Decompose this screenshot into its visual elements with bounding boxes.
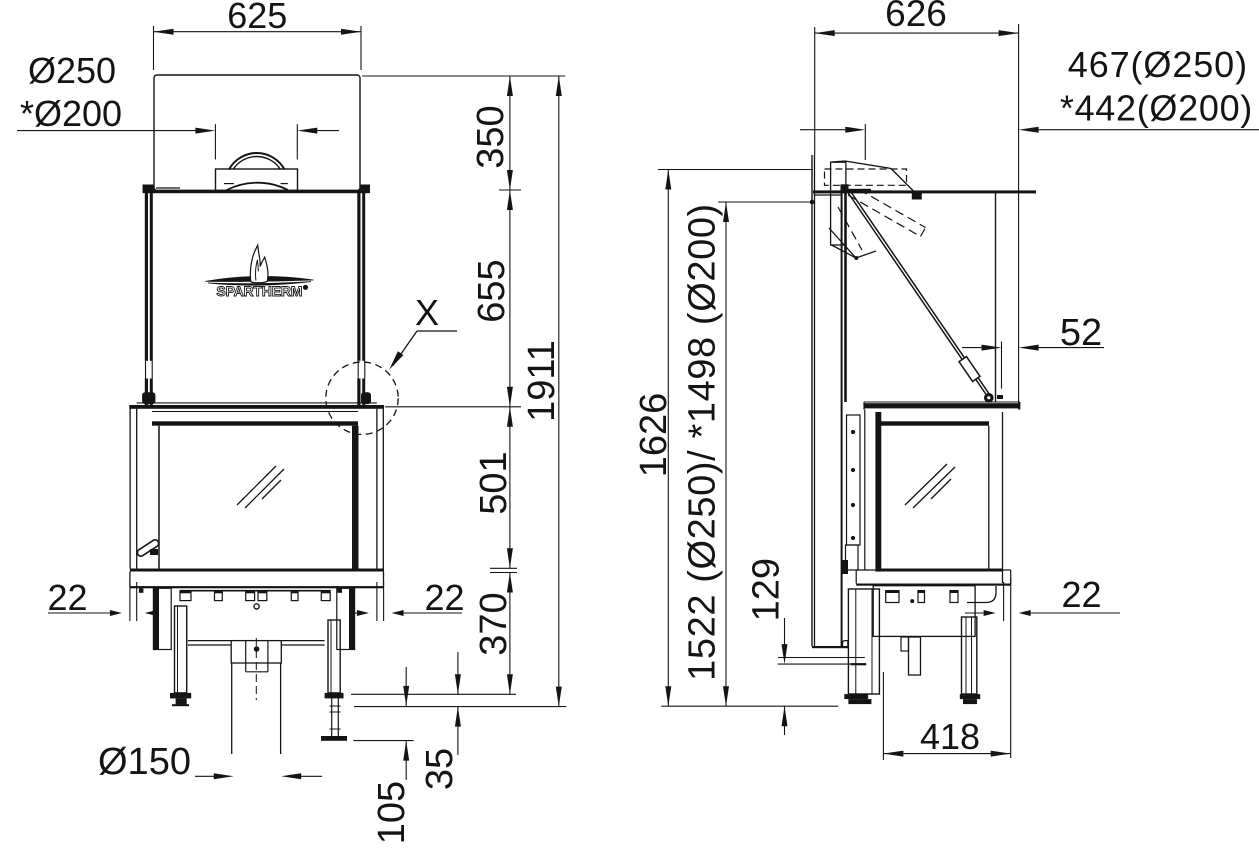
svg-text:22: 22 (47, 577, 87, 618)
svg-text:1522 (Ø250)/ *1498 (Ø200): 1522 (Ø250)/ *1498 (Ø200) (681, 203, 723, 681)
svg-text:350: 350 (470, 105, 512, 168)
svg-text:105: 105 (371, 781, 413, 844)
svg-text:626: 626 (885, 0, 947, 34)
svg-text:SPARTHERM: SPARTHERM (216, 283, 302, 299)
svg-text:370: 370 (473, 592, 515, 655)
svg-text:418: 418 (920, 716, 980, 757)
svg-text:*442(Ø200): *442(Ø200) (1060, 88, 1253, 129)
svg-text:625: 625 (227, 0, 287, 36)
svg-text:1911: 1911 (521, 340, 563, 422)
svg-text:655: 655 (471, 259, 513, 322)
svg-text:Ø150: Ø150 (98, 741, 191, 783)
svg-text:52: 52 (1060, 312, 1102, 354)
svg-text:X: X (415, 292, 439, 333)
svg-text:35: 35 (419, 748, 461, 790)
svg-text:467(Ø250): 467(Ø250) (1068, 44, 1248, 85)
svg-text:129: 129 (745, 558, 787, 621)
svg-text:1626: 1626 (633, 393, 675, 478)
svg-text:*Ø200: *Ø200 (20, 93, 122, 134)
svg-text:22: 22 (1061, 574, 1101, 615)
svg-text:22: 22 (424, 577, 464, 618)
svg-text:501: 501 (473, 451, 515, 514)
svg-text:Ø250: Ø250 (28, 50, 116, 91)
